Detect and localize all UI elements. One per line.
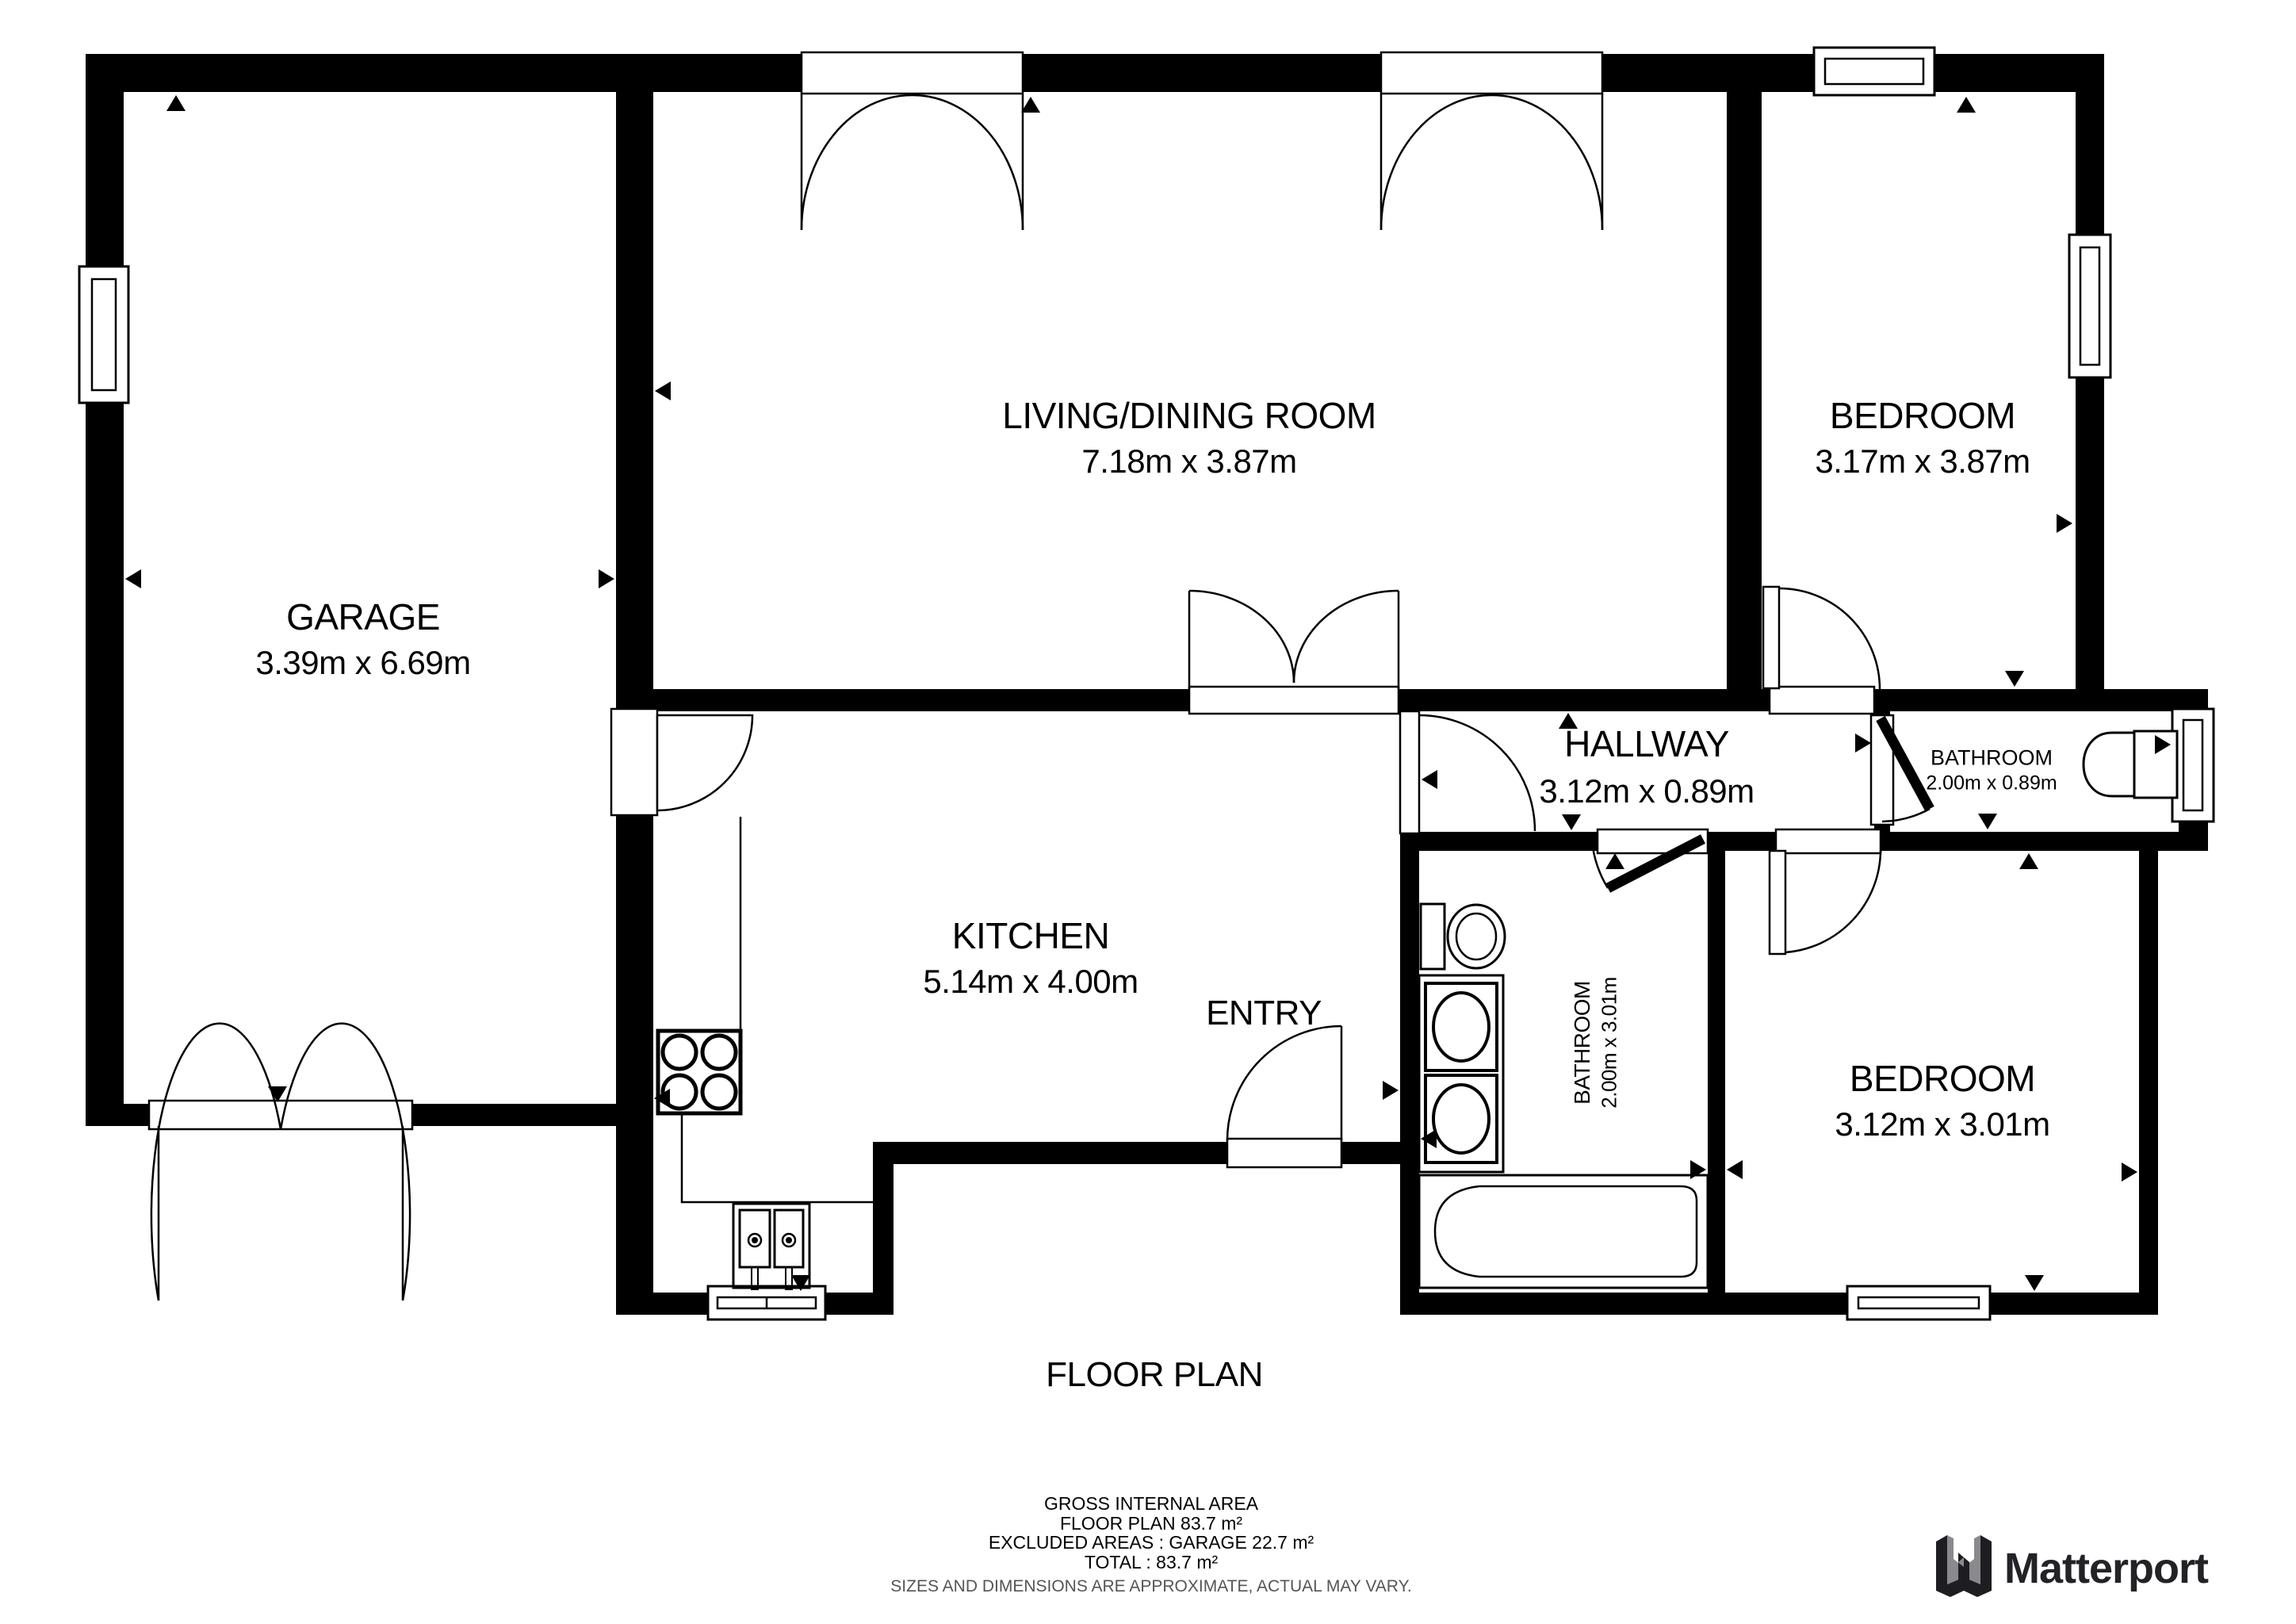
room-dims-living-dining: 7.18m x 3.87m <box>1081 442 1296 481</box>
matterport-logo-text: Matterport <box>2004 1544 2208 1593</box>
wall <box>1400 1293 2158 1315</box>
room-label-bathroom-main: BATHROOM <box>1570 981 1595 1105</box>
arrow-left-icon <box>125 569 141 588</box>
page-title: FLOOR PLAN <box>1046 1355 1263 1395</box>
room-dims-bathroom-main: 2.00m x 3.01m <box>1598 977 1622 1108</box>
room-dims-hallway: 3.12m x 0.89m <box>1539 772 1754 810</box>
arrow-right-icon <box>599 569 614 588</box>
wall <box>1400 832 1419 1315</box>
room-dims-bedroom-bottom: 3.12m x 3.01m <box>1835 1105 2049 1143</box>
disclaimer-text: SIZES AND DIMENSIONS ARE APPROXIMATE, AC… <box>890 1577 1411 1597</box>
window-icon <box>2172 709 2214 822</box>
door-swing-icon <box>1770 851 1881 954</box>
french-door-icon <box>1381 94 1602 230</box>
room-label-entry: ENTRY <box>1206 994 1322 1033</box>
arrow-left-icon <box>655 381 671 400</box>
wall <box>86 54 124 1126</box>
area-summary-line: FLOOR PLAN 83.7 m² <box>890 1514 1411 1534</box>
window-icon <box>1814 48 1934 95</box>
area-summary: GROSS INTERNAL AREA FLOOR PLAN 83.7 m² E… <box>890 1494 1411 1597</box>
window-icon <box>79 266 128 403</box>
door-swing-icon <box>1400 711 1535 833</box>
room-label-bathroom-small: BATHROOM <box>1931 746 2053 771</box>
arrow-down-icon <box>2005 671 2024 687</box>
stove-icon <box>658 1031 740 1113</box>
arrow-right-icon <box>1383 1081 1399 1100</box>
door-swing-icon <box>1763 587 1880 689</box>
door-opening <box>1776 829 1881 853</box>
room-dims-bathroom-small: 2.00m x 0.89m <box>1926 772 2057 795</box>
arrow-right-icon <box>1855 733 1871 753</box>
matterport-branding: Matterport <box>1934 1535 2208 1602</box>
wall <box>2139 832 2158 1315</box>
bathtub-icon <box>1419 1175 1708 1288</box>
arrow-right-icon <box>2122 1162 2137 1182</box>
door-swing-icon <box>657 715 752 810</box>
garage-door-icon <box>151 1024 410 1300</box>
french-door-icon <box>802 94 1023 230</box>
arrow-down-icon <box>1562 814 1581 830</box>
window-icon <box>1847 1286 1990 1319</box>
arrow-up-icon <box>1957 97 1976 113</box>
room-label-living-dining: LIVING/DINING ROOM <box>1002 394 1376 437</box>
room-dims-garage: 3.39m x 6.69m <box>255 644 470 682</box>
toilet-icon <box>1421 904 1505 969</box>
wall <box>616 92 653 1315</box>
area-summary-line: EXCLUDED AREAS : GARAGE 22.7 m² <box>890 1533 1411 1553</box>
arrow-up-icon <box>1021 97 1040 113</box>
window-icon <box>2069 235 2110 377</box>
arrow-up-icon <box>166 95 186 111</box>
arrow-up-icon <box>2019 853 2038 869</box>
arrow-left-icon <box>1727 1160 1743 1179</box>
french-door-opening <box>1381 52 1602 94</box>
room-label-kitchen: KITCHEN <box>952 914 1109 957</box>
wall <box>1727 92 1762 689</box>
entry-door-opening <box>1227 1139 1341 1167</box>
room-dims-kitchen: 5.14m x 4.00m <box>923 963 1138 1001</box>
door-opening <box>1770 687 1874 714</box>
wall <box>1708 832 1725 1315</box>
room-label-hallway: HALLWAY <box>1564 722 1729 765</box>
room-label-garage: GARAGE <box>286 596 440 638</box>
room-label-bedroom-top: BEDROOM <box>1830 394 2015 437</box>
arrow-left-icon <box>1422 770 1437 789</box>
entry-door-icon <box>1227 1026 1341 1140</box>
door-opening <box>611 709 657 815</box>
room-label-bedroom-bottom: BEDROOM <box>1850 1057 2035 1100</box>
matterport-logo-icon <box>1934 1535 1993 1602</box>
double-door-icon <box>1189 591 1399 689</box>
window-icon <box>708 1286 825 1319</box>
kitchen-counter-line <box>682 817 876 1286</box>
arrow-down-icon <box>1978 814 1997 829</box>
area-summary-line: GROSS INTERNAL AREA <box>890 1494 1411 1514</box>
area-summary-line: TOTAL : 83.7 m² <box>890 1553 1411 1572</box>
arrow-up-icon <box>1605 853 1624 869</box>
room-dims-bedroom-top: 3.17m x 3.87m <box>1815 442 2030 481</box>
wall <box>2076 54 2104 711</box>
french-door-opening <box>802 52 1023 94</box>
arrow-down-icon <box>2025 1275 2044 1291</box>
wall <box>86 54 2104 92</box>
arrow-right-icon <box>2057 514 2072 533</box>
double-door-opening <box>1189 687 1399 714</box>
